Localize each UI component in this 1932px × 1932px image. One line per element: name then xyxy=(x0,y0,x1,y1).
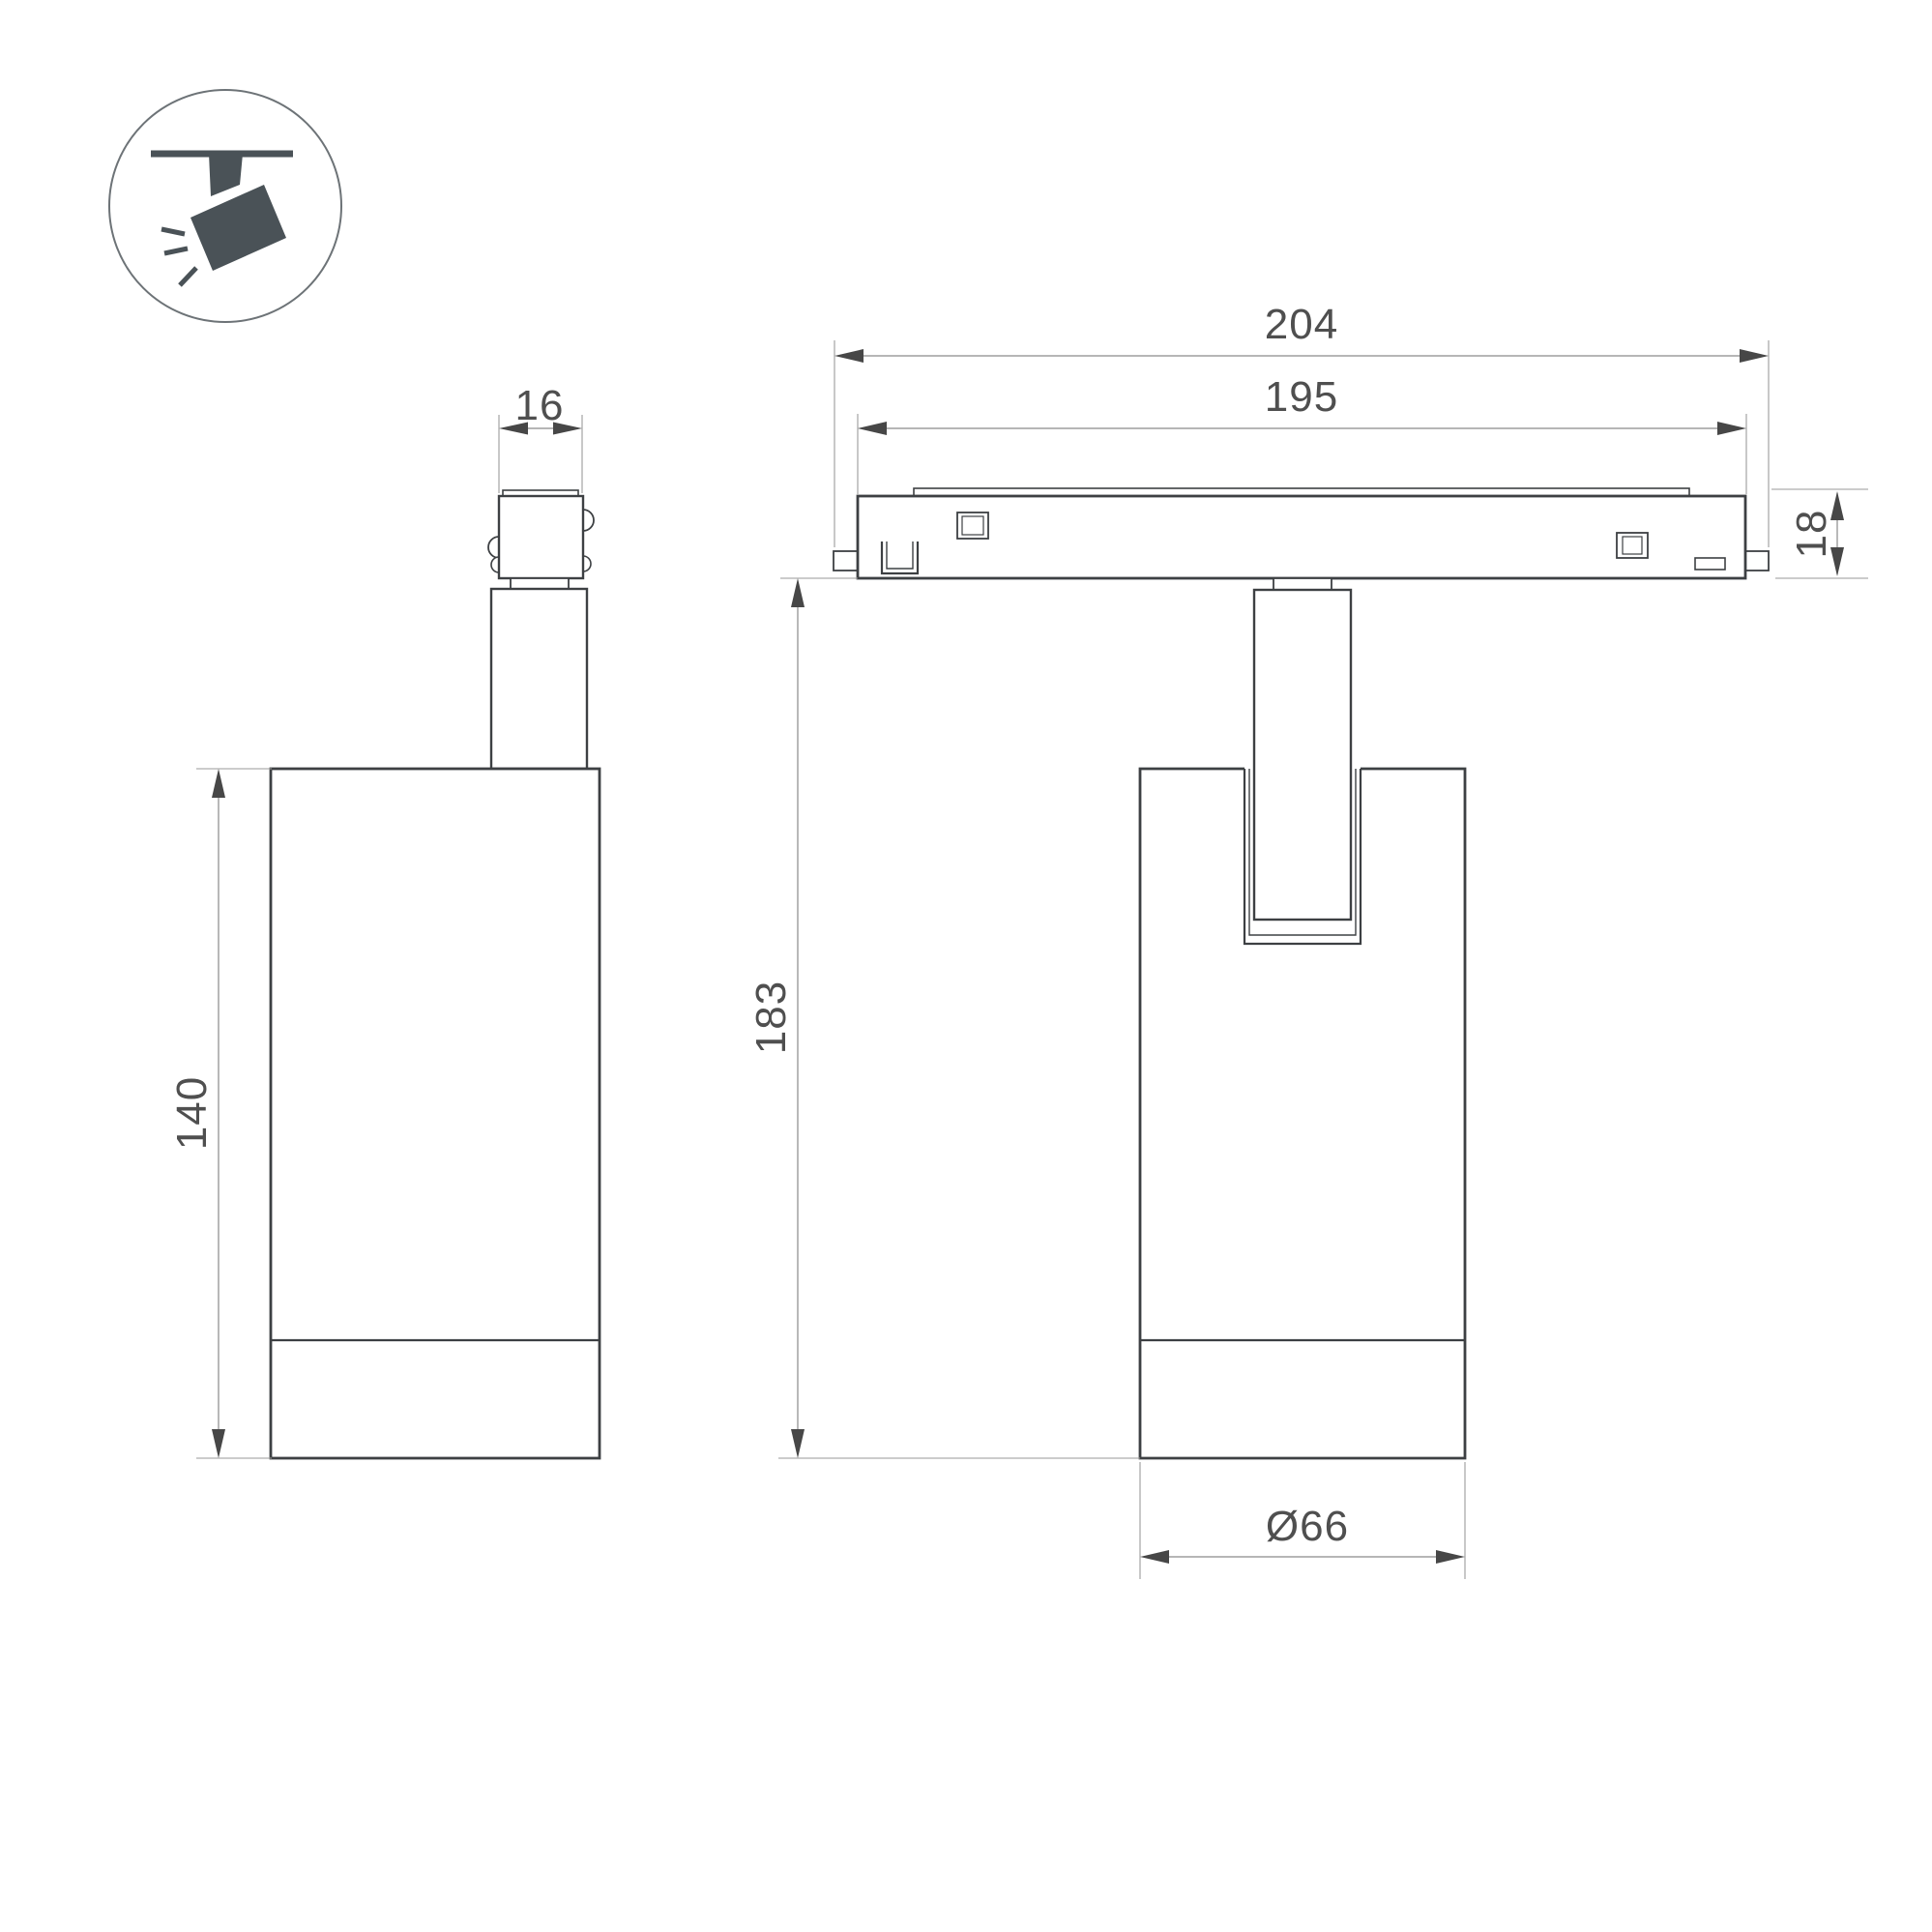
pictogram xyxy=(109,90,341,322)
arrowhead xyxy=(212,1429,225,1458)
adapter-neck xyxy=(511,578,569,589)
front-view xyxy=(834,488,1769,1458)
dimension-drawing: 16 140 204 195 18 183 Ø66 xyxy=(0,0,1932,1932)
magnet-track xyxy=(858,496,1745,578)
dimension-label-overall-height: 183 xyxy=(747,981,795,1054)
lamp-body xyxy=(271,769,600,1458)
arrowhead xyxy=(1140,1550,1169,1564)
drawing-canvas: 16 140 204 195 18 183 Ø66 xyxy=(0,0,1932,1932)
dimension-label-track-height: 18 xyxy=(1788,510,1835,559)
adapter-neck xyxy=(1273,578,1332,590)
dimension-label-track-outer-length: 204 xyxy=(1265,301,1338,348)
track-adapter-box xyxy=(499,496,583,578)
side-view xyxy=(271,490,600,1458)
arrowhead xyxy=(1436,1550,1465,1564)
arrowhead xyxy=(791,1429,805,1458)
arrowhead xyxy=(834,349,864,363)
arrowhead xyxy=(858,422,887,435)
dimension-label-adapter-width: 16 xyxy=(515,382,565,429)
arrowhead xyxy=(791,578,805,607)
pivot-stem xyxy=(491,589,587,769)
arrowhead xyxy=(212,769,225,798)
arrowhead xyxy=(1717,422,1746,435)
track-right-tab xyxy=(1745,551,1769,571)
arrowhead xyxy=(1740,349,1769,363)
track-slot xyxy=(1695,558,1725,570)
track-left-tab xyxy=(834,551,858,571)
pivot-stem xyxy=(1254,590,1351,920)
dimension-label-body-height: 140 xyxy=(168,1076,216,1150)
dimension-label-body-diameter: Ø66 xyxy=(1266,1503,1349,1550)
dimension-label-track-inner-length: 195 xyxy=(1265,373,1338,421)
